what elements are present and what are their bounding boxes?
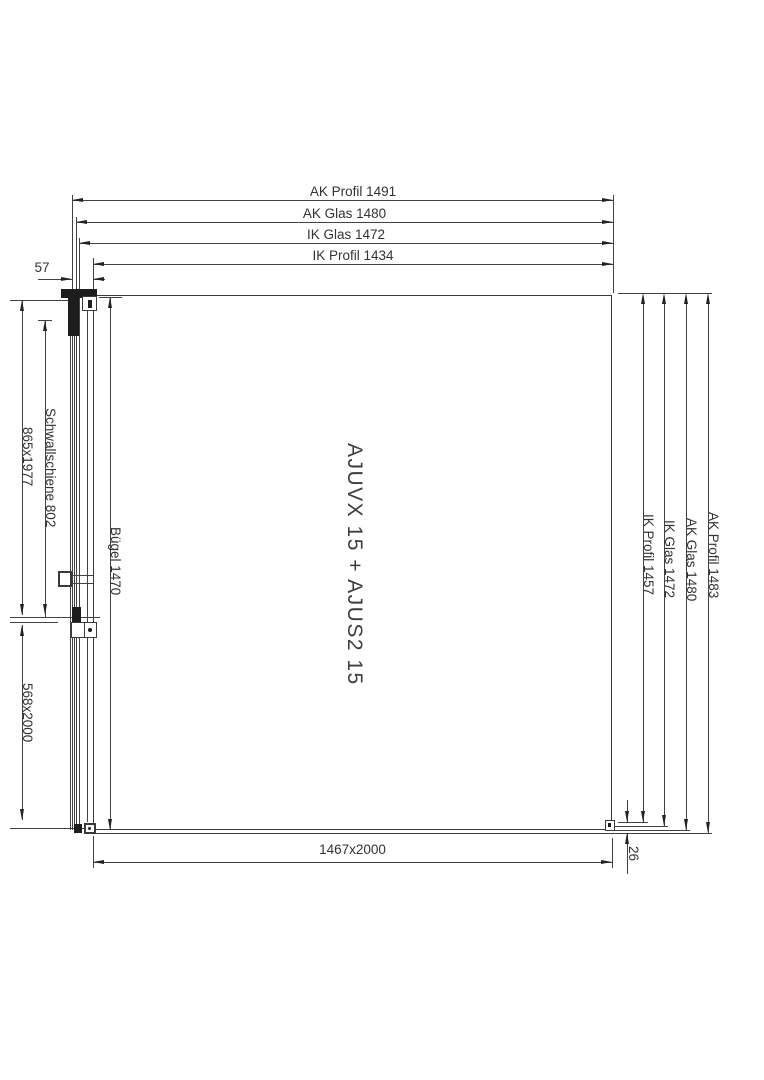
arrow [20,809,24,820]
arrow [108,297,112,308]
arrow [43,320,47,331]
arrow [61,277,72,281]
arrow [72,198,83,202]
dim-label-ak-glas-width: AK Glas 1480 [76,207,613,221]
extension-line [612,838,613,868]
extension-line [613,195,614,293]
dim-line-ak-glas-width [76,222,613,223]
knob-handle [58,571,72,587]
arrow [108,819,112,830]
dim-label-ak-profil-height: AK Profil 1483 [706,512,721,598]
wall-profile-section [68,298,79,336]
model-designation: AJUVX 15 + AJUS2 15 [342,443,367,686]
extension-line [612,830,690,831]
arrow [662,293,666,304]
dim-label-865x1977: 865x1977 [20,427,35,486]
dim-line-ik-profil-width [93,264,613,265]
dim-label-ik-profil-width: IK Profil 1434 [93,249,613,263]
profile-line [74,290,75,830]
knob-line [72,583,93,584]
arrow [662,815,666,826]
bottom-left-bracket [74,824,82,833]
dim-label-57: 57 [28,261,56,275]
extension-line [10,617,100,618]
dim-label-buegel: Bügel 1470 [108,527,123,595]
extension-line [618,822,648,823]
dim-label-ik-profil-height: IK Profil 1457 [641,514,656,595]
dim-label-ik-glas-height: IK Glas 1472 [662,520,677,598]
arrow [706,822,710,833]
bottom-left-fitting-screw [88,827,91,830]
bottom-profile-line [93,833,712,834]
arrow [641,293,645,304]
profile-line [79,238,80,830]
dim-line-ik-glas-width [79,243,613,244]
dim-label-ik-glas-width: IK Glas 1472 [79,228,613,242]
arrow [684,819,688,830]
arrow [684,293,688,304]
knob-line [72,575,93,576]
bottom-clamp-screw [88,628,92,632]
arrow [625,833,629,844]
arrow [601,860,612,864]
arrow [93,277,104,281]
arrow [20,300,24,311]
dim-label-26: 26 [626,846,641,861]
extension-line [612,826,668,827]
arrow [20,604,24,615]
dim-label-568x2000: 568x2000 [20,683,35,742]
wall-profile-line [70,290,71,830]
dim-label-1467x2000: 1467x2000 [93,843,612,857]
bottom-right-fitting-screw [608,823,611,827]
top-clamp-screw [88,300,92,308]
bottom-clamp-divider [84,623,85,637]
technical-drawing: AK Profil 1491 AK Glas 1480 IK Glas 1472… [0,0,764,1080]
extension-line [10,622,58,623]
schwallschiene-end [72,607,81,622]
arrow [20,625,24,636]
arrow [625,811,629,822]
dim-line-ak-profil-width [73,200,613,201]
dim-line-1467x2000 [93,862,612,863]
dim-label-ak-glas-height: AK Glas 1480 [684,518,699,601]
arrow [43,604,47,615]
arrow [93,860,104,864]
arrow [706,293,710,304]
schwallschiene-line [87,311,88,822]
dim-label-schwallschiene: Schwallschiene 802 [43,408,58,527]
dim-label-ak-profil-width: AK Profil 1491 [93,185,613,199]
arrow [641,811,645,822]
